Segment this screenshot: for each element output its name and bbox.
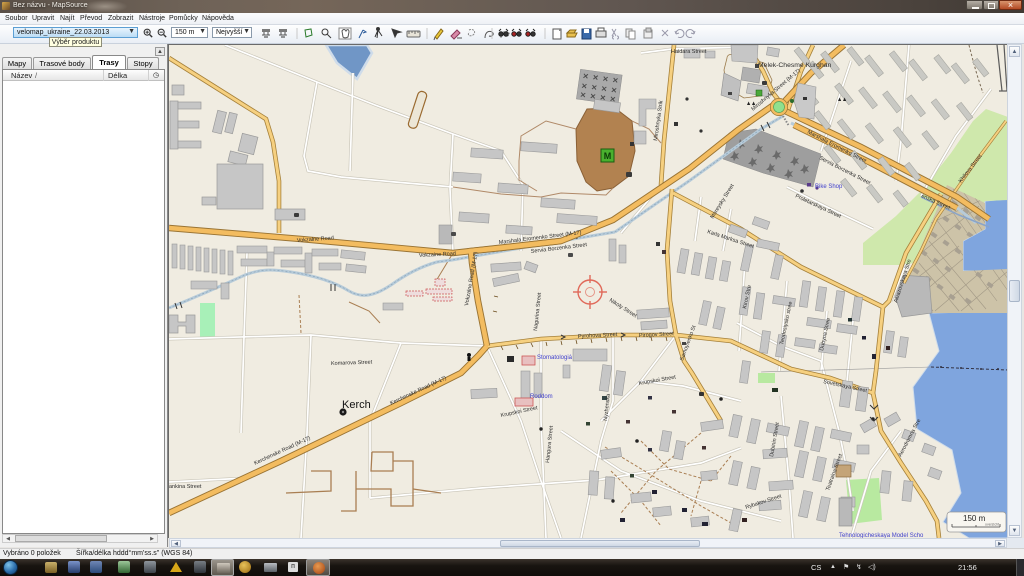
svg-text:Kerch: Kerch [342, 399, 371, 411]
svg-text:Stomatologiá: Stomatologiá [537, 355, 573, 361]
svg-text:Melek-Chesme Kurghan: Melek-Chesme Kurghan [758, 62, 832, 69]
svg-text:ankina Street: ankina Street [169, 484, 202, 490]
svg-text:Haidara Street: Haidara Street [671, 49, 707, 55]
svg-text:overzicht: overzicht [985, 523, 999, 527]
svg-text:M: M [604, 151, 612, 161]
svg-text:150 m: 150 m [963, 514, 986, 523]
svg-text:Bike Shop: Bike Shop [815, 184, 843, 190]
svg-text:Roddom: Roddom [530, 394, 553, 400]
